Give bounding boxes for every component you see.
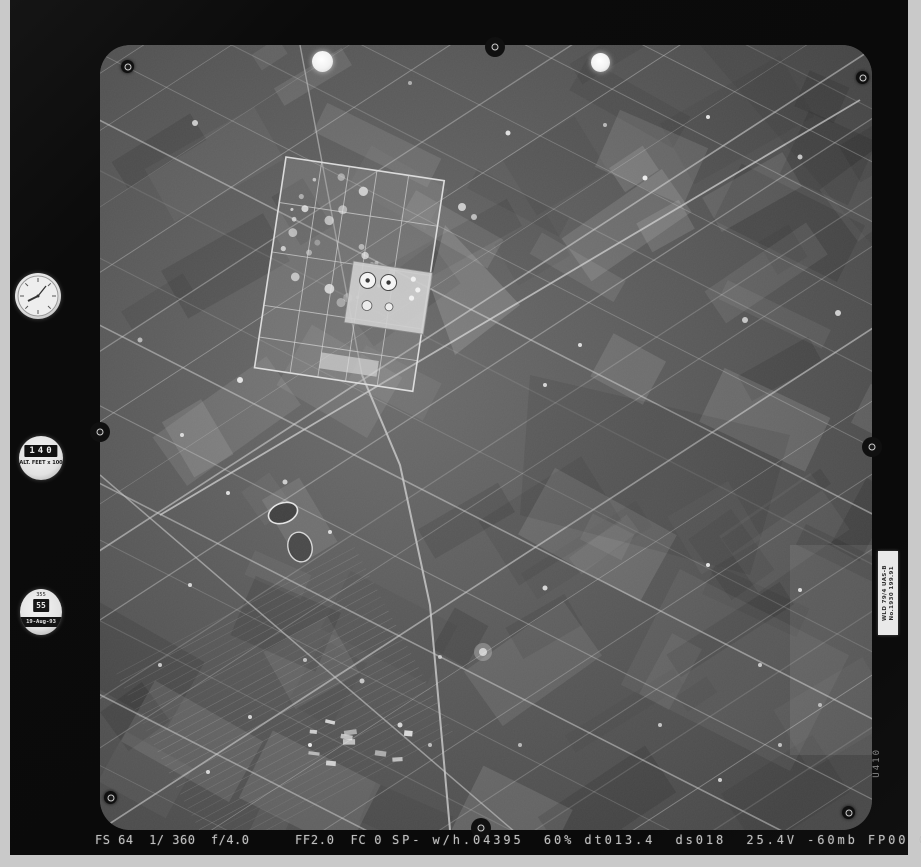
registration-lamp-icon <box>312 51 333 72</box>
counter-date: 19-Aug-93 <box>20 617 62 627</box>
fiducial-mark-icon <box>90 422 110 442</box>
fiducial-mark-icon <box>856 71 869 84</box>
film-edge-label-line1: WLD 79/4 UAS-B <box>882 565 888 621</box>
scanned-aerial-film-frame: { "film": { "data_strip": { "segment1": … <box>0 0 921 867</box>
data-strip-exposure: FS 64 1/ 360 f/4.0 <box>95 833 250 847</box>
fiducial-mark-icon <box>842 806 855 819</box>
clock-face-icon <box>15 273 61 319</box>
altimeter-readout: 140 <box>24 445 57 457</box>
data-strip-telemetry: SP- w/h.04395 60% dt013.4 ds018 25.4V -6… <box>392 833 921 847</box>
fiducial-mark-icon <box>485 37 505 57</box>
fiducial-mark-icon <box>862 437 882 457</box>
altimeter-instrument: 140 ALT. FEET x 100 <box>19 436 63 480</box>
clock-instrument <box>15 273 61 319</box>
fiducial-mark-icon <box>104 791 117 804</box>
fiducial-mark-icon <box>121 60 134 73</box>
aerial-photo <box>100 45 872 830</box>
film-edge-label-line2: No.1930 199.91 <box>889 566 895 621</box>
film-edge-label: WLD 79/4 UAS-B No.1930 199.91 <box>878 551 898 635</box>
counter-value: 55 <box>33 599 49 612</box>
aerial-terrain-image <box>100 45 872 830</box>
data-strip-camera: FF2.0 FC 0 <box>295 833 382 847</box>
counter-top-value: 355 <box>36 592 46 598</box>
frame-counter-instrument: 355 55 19-Aug-93 <box>20 589 62 635</box>
frame-number: U410 <box>872 748 886 778</box>
registration-lamp-icon <box>591 53 610 72</box>
altimeter-label: ALT. FEET x 100 <box>19 460 62 466</box>
